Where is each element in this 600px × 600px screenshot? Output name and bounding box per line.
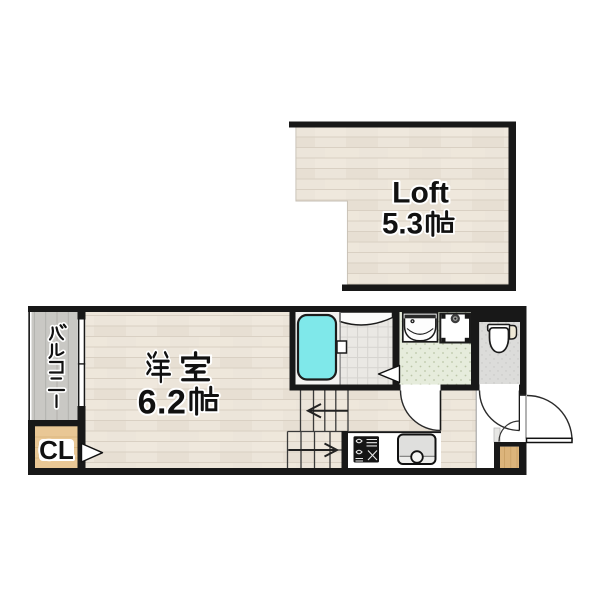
svg-text:5.3: 5.3 [382, 208, 423, 241]
svg-text:CL: CL [39, 435, 74, 465]
svg-text:6.2: 6.2 [138, 383, 187, 421]
svg-text:Loft: Loft [392, 176, 449, 209]
